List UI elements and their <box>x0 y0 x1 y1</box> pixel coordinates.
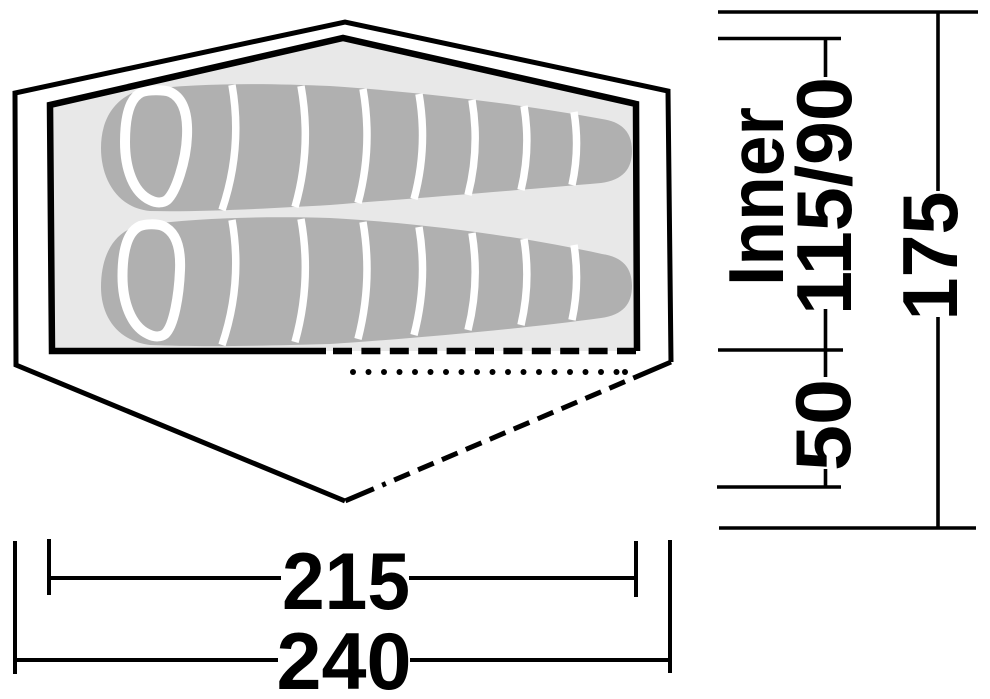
svg-text:215: 215 <box>282 537 410 627</box>
svg-text:240: 240 <box>277 617 412 699</box>
svg-text:50: 50 <box>779 379 867 471</box>
svg-text:115/90: 115/90 <box>780 77 868 315</box>
svg-text:175: 175 <box>886 192 974 321</box>
